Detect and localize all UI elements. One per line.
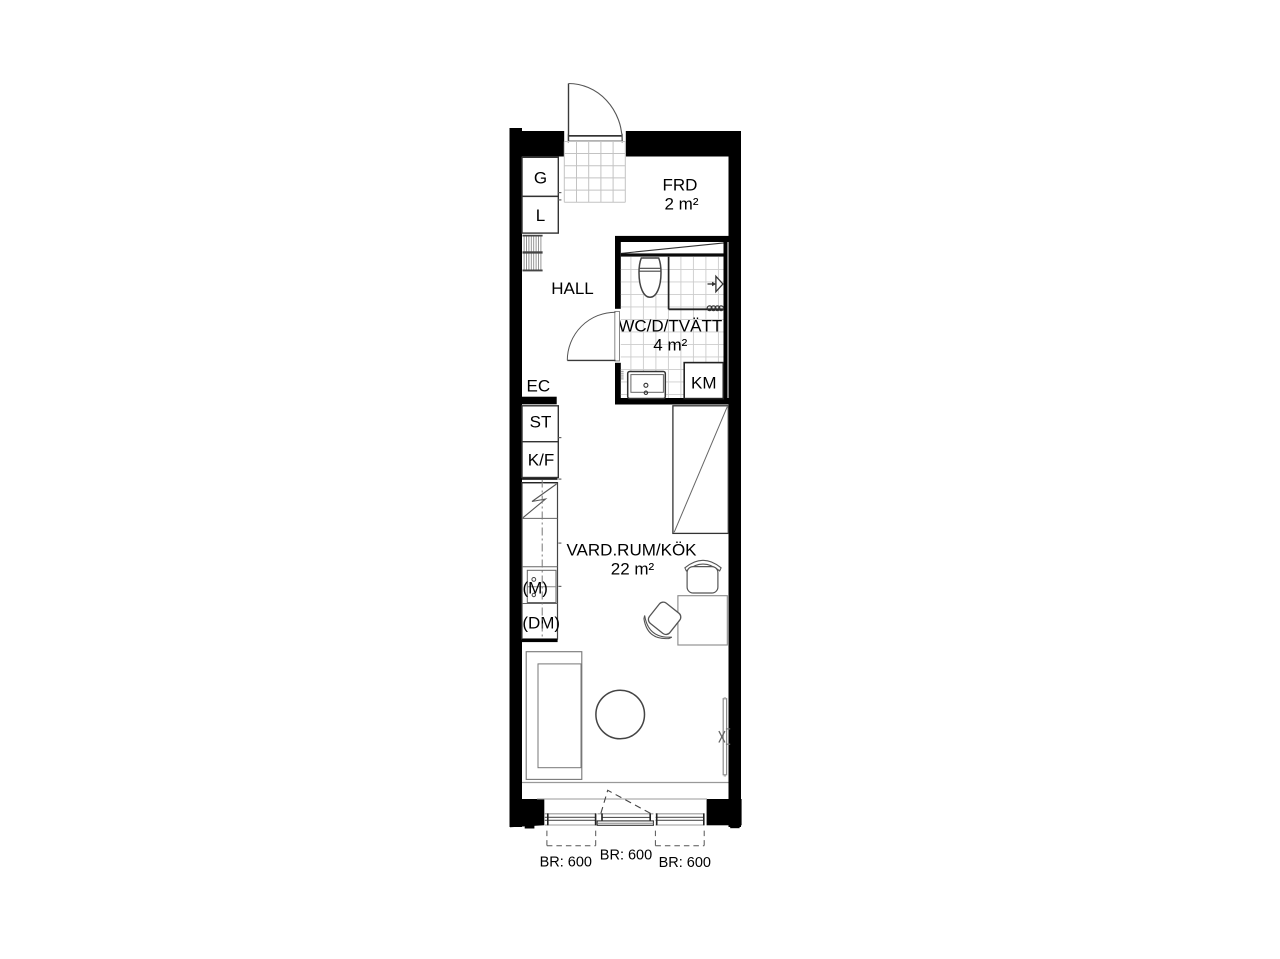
svg-text:VARD.RUM/KÖK: VARD.RUM/KÖK <box>566 541 697 560</box>
svg-text:L: L <box>536 206 545 225</box>
svg-text:(M): (M) <box>522 579 547 598</box>
svg-text:BR: 600: BR: 600 <box>540 855 592 871</box>
svg-text:EC: EC <box>527 377 551 396</box>
svg-text:22 m²: 22 m² <box>611 560 655 579</box>
svg-text:HALL: HALL <box>551 279 594 298</box>
svg-text:BR: 600: BR: 600 <box>600 848 652 864</box>
svg-text:(DM): (DM) <box>522 614 560 633</box>
svg-text:BR: 600: BR: 600 <box>659 855 711 871</box>
svg-text:ST: ST <box>530 413 552 432</box>
svg-text:K/F: K/F <box>528 451 554 470</box>
svg-text:4 m²: 4 m² <box>653 336 687 355</box>
svg-text:G: G <box>534 169 547 188</box>
svg-text:2 m²: 2 m² <box>665 195 699 214</box>
svg-text:FRD: FRD <box>663 176 698 195</box>
svg-text:WC/D/TVÄTT: WC/D/TVÄTT <box>618 317 722 336</box>
svg-text:KM: KM <box>691 374 717 393</box>
